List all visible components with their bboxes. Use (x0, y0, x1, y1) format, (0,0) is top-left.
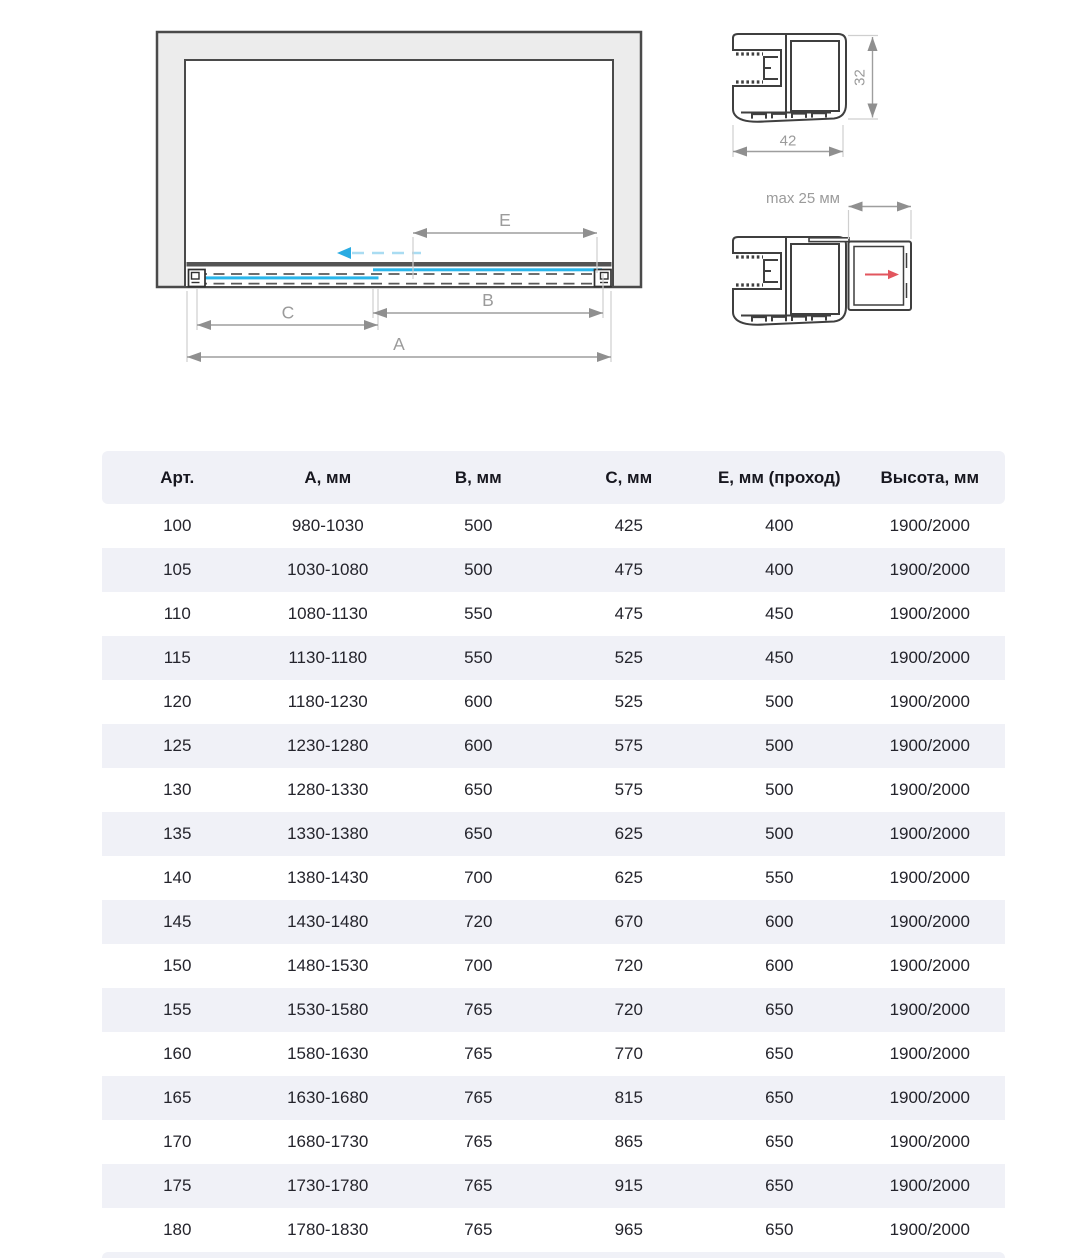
column-header: Арт. (102, 451, 253, 504)
table-cell: 550 (403, 636, 554, 680)
table-cell: 1900/2000 (855, 856, 1006, 900)
size-table-section: Арт.А, ммВ, ммС, ммЕ, мм (проход)Высота,… (102, 451, 1005, 1258)
technical-diagram: E B C A 32 (0, 0, 1087, 440)
dimension-height-32: 32 (848, 36, 878, 120)
table-row: 1701680-17307658656501900/2000 (102, 1120, 1005, 1164)
table-cell: 980-1030 (253, 504, 404, 548)
table-cell: 475 (554, 548, 705, 592)
table-cell: 135 (102, 812, 253, 856)
table-cell: 105 (102, 548, 253, 592)
table-cell: 550 (403, 592, 554, 636)
table-row: 1451430-14807206706001900/2000 (102, 900, 1005, 944)
table-cell: 525 (554, 636, 705, 680)
table-cell: 1080-1130 (253, 592, 404, 636)
table-cell: 720 (403, 900, 554, 944)
table-row: 1501480-15307007206001900/2000 (102, 944, 1005, 988)
table-cell: 425 (554, 504, 705, 548)
table-cell: 1900/2000 (855, 1120, 1006, 1164)
table-cell: 1900/2000 (855, 768, 1006, 812)
table-cell: 770 (554, 1032, 705, 1076)
wall-bracket-left (189, 270, 206, 287)
table-cell: 120 (102, 680, 253, 724)
table-row: 1201180-12306005255001900/2000 (102, 680, 1005, 724)
dim-label-B: B (482, 290, 494, 310)
table-row: 1051030-10805004754001900/2000 (102, 548, 1005, 592)
table-cell: 650 (704, 988, 855, 1032)
table-cell: 500 (403, 548, 554, 592)
table-cell: 625 (554, 812, 705, 856)
table-cell: 180 (102, 1208, 253, 1252)
table-cell: 1630-1680 (253, 1076, 404, 1120)
dim-label-C: C (282, 303, 295, 323)
table-row: 1151130-11805505254501900/2000 (102, 636, 1005, 680)
table-cell: 965 (554, 1208, 705, 1252)
table-cell: 1030-1080 (253, 548, 404, 592)
profile-section-extension: max 25 мм (733, 190, 911, 325)
extension-lip (809, 238, 849, 242)
table-cell: 915 (554, 1164, 705, 1208)
table-cell: 650 (704, 1164, 855, 1208)
table-cell: 1900/2000 (855, 1164, 1006, 1208)
table-row: 100980-10305004254001900/2000 (102, 504, 1005, 548)
table-cell: 500 (704, 724, 855, 768)
table-cell: 450 (704, 592, 855, 636)
table-cell: 1900/2000 (855, 548, 1006, 592)
table-cell: 500 (704, 768, 855, 812)
table-cell: 1180-1230 (253, 680, 404, 724)
table-row: 1401380-14307006255501900/2000 (102, 856, 1005, 900)
table-row: 1351330-13806506255001900/2000 (102, 812, 1005, 856)
column-header: Е, мм (проход) (704, 451, 855, 504)
size-table: Арт.А, ммВ, ммС, ммЕ, мм (проход)Высота,… (102, 451, 1005, 1252)
table-body: 100980-10305004254001900/20001051030-108… (102, 504, 1005, 1252)
dim-label-max25: max 25 мм (766, 190, 840, 207)
table-cell: 1530-1580 (253, 988, 404, 1032)
table-cell: 600 (403, 724, 554, 768)
table-cell: 1380-1430 (253, 856, 404, 900)
table-cell: 550 (704, 856, 855, 900)
table-cell: 1900/2000 (855, 1076, 1006, 1120)
table-cell: 575 (554, 768, 705, 812)
table-cell: 865 (554, 1120, 705, 1164)
glass-panel-sliding (196, 276, 379, 279)
table-cell: 400 (704, 548, 855, 592)
table-cell: 765 (403, 1032, 554, 1076)
product-spec-page: E B C A 32 (0, 0, 1087, 1258)
table-cell: 815 (554, 1076, 705, 1120)
profile-section-top: 32 42 (733, 34, 878, 157)
table-cell: 500 (704, 680, 855, 724)
table-cell: 1780-1830 (253, 1208, 404, 1252)
table-cell: 1900/2000 (855, 724, 1006, 768)
table-row: 1101080-11305504754501900/2000 (102, 592, 1005, 636)
column-header: Высота, мм (855, 451, 1006, 504)
table-cell: 765 (403, 1120, 554, 1164)
table-row-partial (102, 1252, 1005, 1258)
table-row: 1601580-16307657706501900/2000 (102, 1032, 1005, 1076)
table-cell: 165 (102, 1076, 253, 1120)
glass-panel-fixed (373, 268, 602, 271)
table-cell: 650 (704, 1208, 855, 1252)
table-cell: 650 (403, 812, 554, 856)
table-cell: 600 (704, 944, 855, 988)
table-cell: 670 (554, 900, 705, 944)
table-cell: 500 (704, 812, 855, 856)
table-cell: 625 (554, 856, 705, 900)
table-cell: 1900/2000 (855, 592, 1006, 636)
table-cell: 155 (102, 988, 253, 1032)
table-cell: 450 (704, 636, 855, 680)
table-cell: 650 (704, 1076, 855, 1120)
dimension-max-25: max 25 мм (766, 190, 911, 239)
table-cell: 720 (554, 988, 705, 1032)
dim-label-A: A (393, 334, 405, 354)
table-cell: 110 (102, 592, 253, 636)
table-row: 1751730-17807659156501900/2000 (102, 1164, 1005, 1208)
table-cell: 765 (403, 1164, 554, 1208)
table-cell: 765 (403, 988, 554, 1032)
table-cell: 720 (554, 944, 705, 988)
table-cell: 700 (403, 856, 554, 900)
table-cell: 650 (403, 768, 554, 812)
table-cell: 650 (704, 1032, 855, 1076)
table-row: 1801780-18307659656501900/2000 (102, 1208, 1005, 1252)
table-cell: 115 (102, 636, 253, 680)
dim-label-32: 32 (852, 69, 869, 86)
table-cell: 1680-1730 (253, 1120, 404, 1164)
table-cell: 170 (102, 1120, 253, 1164)
table-cell: 1900/2000 (855, 504, 1006, 548)
table-cell: 1900/2000 (855, 900, 1006, 944)
table-cell: 1900/2000 (855, 812, 1006, 856)
table-cell: 175 (102, 1164, 253, 1208)
dim-label-42: 42 (780, 133, 797, 150)
table-cell: 1900/2000 (855, 988, 1006, 1032)
table-cell: 1330-1380 (253, 812, 404, 856)
table-cell: 1280-1330 (253, 768, 404, 812)
table-cell: 1130-1180 (253, 636, 404, 680)
dimension-A: A (187, 334, 611, 357)
table-cell: 765 (403, 1208, 554, 1252)
extension-profile (849, 242, 912, 311)
table-cell: 1730-1780 (253, 1164, 404, 1208)
column-header: С, мм (554, 451, 705, 504)
main-view: E B C A (157, 32, 641, 362)
table-head: Арт.А, ммВ, ммС, ммЕ, мм (проход)Высота,… (102, 451, 1005, 504)
table-cell: 1580-1630 (253, 1032, 404, 1076)
table-cell: 1900/2000 (855, 636, 1006, 680)
table-cell: 100 (102, 504, 253, 548)
table-cell: 1900/2000 (855, 680, 1006, 724)
dimension-width-42: 42 (733, 125, 843, 157)
table-cell: 1900/2000 (855, 1032, 1006, 1076)
table-cell: 700 (403, 944, 554, 988)
table-cell: 500 (403, 504, 554, 548)
table-cell: 650 (704, 1120, 855, 1164)
table-cell: 125 (102, 724, 253, 768)
table-cell: 525 (554, 680, 705, 724)
table-cell: 160 (102, 1032, 253, 1076)
table-cell: 575 (554, 724, 705, 768)
dimension-C: C (197, 303, 378, 326)
track-rail (187, 262, 612, 267)
dimension-B: B (373, 290, 603, 313)
column-header: А, мм (253, 451, 404, 504)
table-row: 1301280-13306505755001900/2000 (102, 768, 1005, 812)
table-cell: 140 (102, 856, 253, 900)
table-cell: 145 (102, 900, 253, 944)
table-cell: 475 (554, 592, 705, 636)
table-header-row: Арт.А, ммВ, ммС, ммЕ, мм (проход)Высота,… (102, 451, 1005, 504)
table-cell: 400 (704, 504, 855, 548)
table-cell: 600 (704, 900, 855, 944)
table-row: 1651630-16807658156501900/2000 (102, 1076, 1005, 1120)
column-header: В, мм (403, 451, 554, 504)
table-row: 1251230-12806005755001900/2000 (102, 724, 1005, 768)
table-cell: 1230-1280 (253, 724, 404, 768)
table-cell: 1900/2000 (855, 944, 1006, 988)
table-cell: 1430-1480 (253, 900, 404, 944)
table-row: 1551530-15807657206501900/2000 (102, 988, 1005, 1032)
table-cell: 1900/2000 (855, 1208, 1006, 1252)
table-cell: 1480-1530 (253, 944, 404, 988)
table-cell: 600 (403, 680, 554, 724)
table-cell: 765 (403, 1076, 554, 1120)
dim-label-E: E (499, 210, 511, 230)
table-cell: 130 (102, 768, 253, 812)
table-cell: 150 (102, 944, 253, 988)
